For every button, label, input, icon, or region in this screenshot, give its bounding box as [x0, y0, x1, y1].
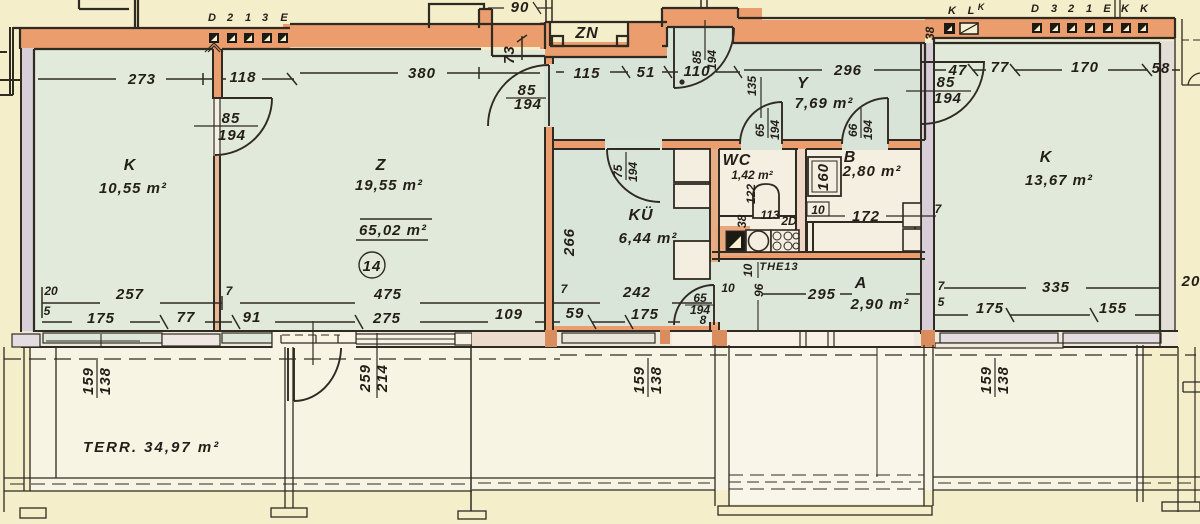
svg-text:5: 5: [44, 304, 51, 318]
svg-text:77: 77: [991, 59, 1010, 76]
svg-text:3: 3: [1051, 3, 1059, 15]
svg-text:38: 38: [923, 26, 937, 40]
svg-text:A: A: [854, 275, 868, 292]
svg-text:1,42 m²: 1,42 m²: [731, 168, 773, 182]
svg-text:2: 2: [1067, 3, 1076, 15]
svg-text:K: K: [1121, 3, 1131, 15]
svg-text:20: 20: [1181, 273, 1200, 290]
svg-text:85: 85: [937, 74, 956, 91]
svg-text:155: 155: [1099, 300, 1127, 317]
svg-text:14: 14: [363, 258, 382, 275]
svg-text:242: 242: [622, 284, 651, 301]
svg-text:194: 194: [514, 96, 542, 113]
svg-text:58: 58: [1152, 60, 1171, 77]
svg-text:1: 1: [1086, 3, 1094, 15]
svg-text:59: 59: [566, 305, 585, 322]
svg-text:THE13: THE13: [759, 261, 798, 273]
svg-text:E: E: [1103, 3, 1112, 15]
svg-text:159: 159: [631, 366, 648, 394]
svg-text:E: E: [280, 12, 289, 24]
svg-text:51: 51: [637, 64, 656, 81]
svg-text:19,55 m²: 19,55 m²: [355, 177, 423, 194]
svg-text:138: 138: [995, 366, 1012, 394]
svg-text:194: 194: [218, 127, 246, 144]
svg-text:296: 296: [833, 62, 862, 79]
svg-text:75: 75: [611, 164, 625, 178]
svg-text:66: 66: [846, 123, 860, 137]
svg-text:118: 118: [230, 69, 257, 86]
svg-text:90: 90: [511, 0, 530, 16]
svg-text:175: 175: [631, 306, 659, 323]
svg-text:10: 10: [721, 281, 735, 295]
svg-text:38: 38: [735, 214, 749, 228]
svg-text:138: 138: [648, 366, 665, 394]
svg-text:159: 159: [978, 366, 995, 394]
svg-text:6,44 m²: 6,44 m²: [619, 230, 678, 247]
svg-text:91: 91: [243, 309, 262, 326]
svg-text:K: K: [124, 157, 137, 174]
svg-text:159: 159: [80, 367, 97, 395]
svg-text:194: 194: [705, 50, 719, 70]
svg-text:113: 113: [760, 208, 779, 222]
svg-text:K: K: [948, 5, 958, 17]
svg-text:109: 109: [495, 306, 523, 323]
svg-text:85: 85: [690, 50, 704, 64]
svg-text:96: 96: [752, 283, 766, 297]
svg-text:Z: Z: [375, 157, 387, 174]
svg-text:335: 335: [1042, 279, 1070, 296]
svg-text:266: 266: [561, 228, 578, 257]
svg-text:160: 160: [815, 163, 832, 191]
svg-text:10: 10: [741, 263, 755, 277]
svg-text:194: 194: [861, 120, 875, 140]
svg-text:122: 122: [744, 184, 758, 204]
svg-text:175: 175: [976, 300, 1004, 317]
svg-text:135: 135: [745, 76, 759, 96]
svg-text:10: 10: [811, 203, 825, 217]
svg-text:475: 475: [373, 286, 402, 303]
svg-text:65: 65: [753, 123, 767, 137]
svg-text:2,90 m²: 2,90 m²: [850, 296, 910, 313]
svg-text:K: K: [1140, 3, 1150, 15]
svg-text:85: 85: [222, 110, 241, 127]
svg-text:295: 295: [807, 286, 836, 303]
svg-text:8: 8: [700, 313, 707, 327]
svg-text:L: L: [968, 5, 977, 17]
svg-text:ZN: ZN: [574, 25, 598, 42]
svg-text:194: 194: [768, 120, 782, 140]
svg-text:77: 77: [177, 309, 196, 326]
svg-text:175: 175: [87, 310, 115, 327]
svg-text:65,02 m²: 65,02 m²: [359, 222, 427, 239]
svg-text:2: 2: [226, 12, 235, 24]
svg-text:D: D: [208, 12, 218, 24]
svg-text:2,80 m²: 2,80 m²: [842, 163, 902, 180]
svg-text:380: 380: [408, 65, 436, 82]
svg-text:257: 257: [115, 286, 144, 303]
svg-text:194: 194: [934, 90, 962, 107]
svg-text:D: D: [1031, 3, 1041, 15]
svg-text:3: 3: [262, 12, 270, 24]
svg-text:1: 1: [245, 12, 253, 24]
svg-text:170: 170: [1071, 59, 1099, 76]
svg-text:20: 20: [43, 284, 58, 298]
svg-text:WC: WC: [723, 152, 752, 169]
svg-text:73: 73: [501, 45, 518, 64]
svg-text:10,55 m²: 10,55 m²: [99, 180, 167, 197]
svg-text:5: 5: [938, 295, 945, 309]
svg-text:KÜ: KÜ: [628, 205, 653, 224]
svg-text:275: 275: [372, 310, 401, 327]
svg-text:138: 138: [97, 367, 114, 395]
svg-text:194: 194: [626, 162, 640, 182]
svg-text:TERR. 34,97 m²: TERR. 34,97 m²: [83, 439, 220, 456]
svg-text:K: K: [1040, 149, 1053, 166]
svg-text:2D: 2D: [780, 214, 797, 228]
svg-text:13,67 m²: 13,67 m²: [1025, 172, 1093, 189]
svg-text:259: 259: [357, 364, 374, 393]
svg-text:115: 115: [574, 65, 601, 82]
svg-text:273: 273: [127, 71, 156, 88]
svg-text:7,69 m²: 7,69 m²: [795, 95, 854, 112]
svg-text:Y: Y: [797, 75, 809, 92]
svg-text:172: 172: [852, 208, 880, 225]
